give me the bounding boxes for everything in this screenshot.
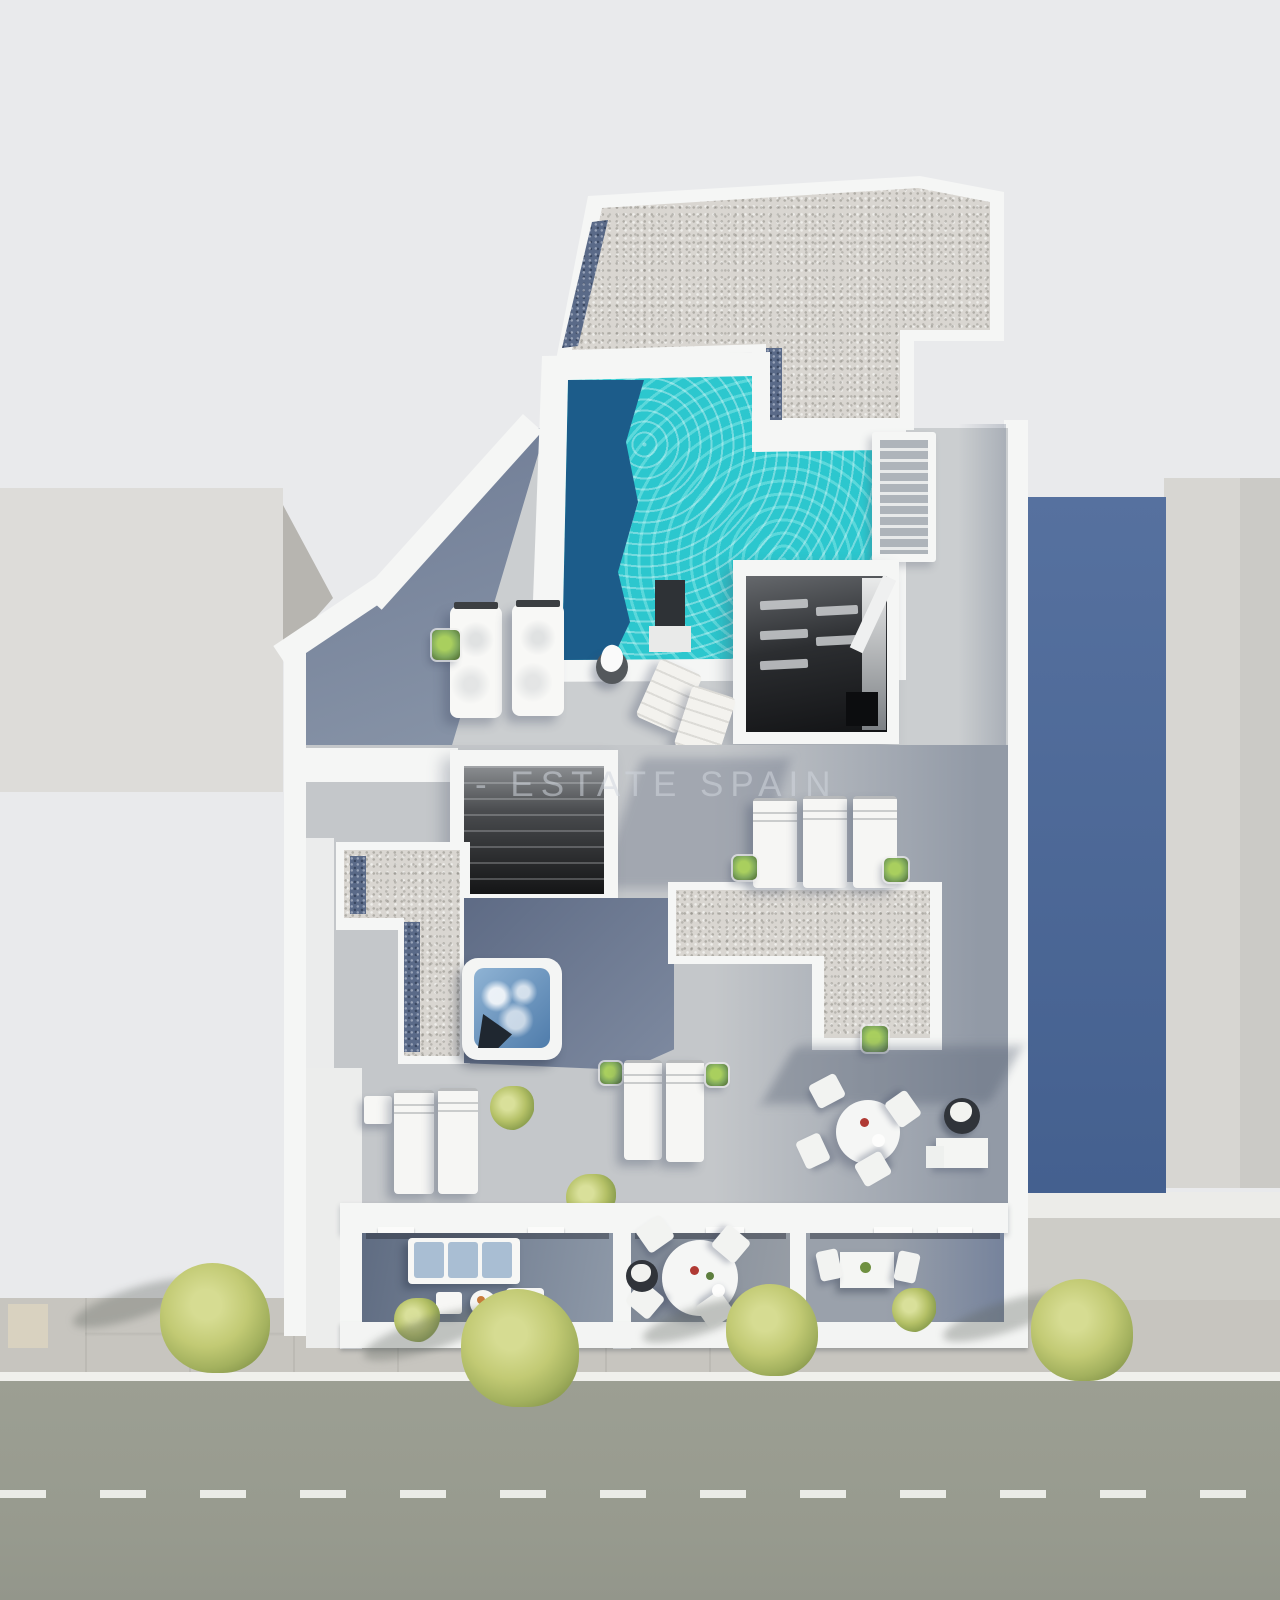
sofa-cushion [448, 1242, 478, 1278]
street-center-dashed-line [0, 1490, 1280, 1498]
plant-box [884, 858, 908, 882]
plant-box [706, 1064, 728, 1086]
sun-lounger [753, 798, 797, 888]
outdoor-shower-base [649, 626, 691, 652]
plate-red [690, 1266, 699, 1275]
right-deck-shadow [958, 424, 1006, 754]
stairs-steps [880, 440, 928, 554]
building-side-shadow-wall [1026, 497, 1166, 1193]
tactile-paving [8, 1304, 48, 1348]
gravel-border-strip [404, 922, 420, 1052]
sofa [408, 1238, 520, 1284]
street-tree [1031, 1279, 1133, 1381]
sofa-cushion [482, 1242, 512, 1278]
plate-red [860, 1118, 869, 1127]
aerial-render-scene: - ESTATE SPAIN [0, 0, 1280, 1600]
left-wall-pad [306, 838, 334, 1068]
plant-box [600, 1062, 622, 1084]
louver-dark-cube [846, 692, 878, 726]
street-tree [461, 1289, 579, 1407]
sun-lounger [666, 1060, 704, 1162]
plant-box [733, 856, 757, 880]
sun-lounger [803, 796, 847, 888]
cast-shadow [761, 1046, 1022, 1104]
daybed [512, 604, 564, 716]
plant-box [432, 630, 460, 660]
plate-white [872, 1134, 885, 1147]
daybed-headboard [454, 602, 498, 609]
neighbor-building-left [0, 488, 283, 792]
outdoor-shower-panel [655, 580, 685, 628]
daybed [450, 606, 502, 718]
sun-lounger [394, 1090, 434, 1194]
gravel-border-strip [350, 856, 366, 914]
street-tree [726, 1284, 818, 1376]
mid-wall [288, 748, 458, 782]
watermark-text: - ESTATE SPAIN [475, 765, 935, 805]
sofa-cushion [414, 1242, 444, 1278]
plate-white [712, 1284, 725, 1297]
table-plant [860, 1262, 871, 1273]
desk-chair [926, 1146, 944, 1168]
sun-lounger [438, 1088, 478, 1194]
right-ground-white-band [1028, 1192, 1280, 1218]
street-tree [160, 1263, 270, 1373]
potted-plant [490, 1086, 534, 1130]
daybed-headboard [516, 600, 560, 607]
sliding-door-track [810, 1233, 1000, 1239]
plate-green [706, 1272, 714, 1280]
sun-lounger [624, 1060, 662, 1160]
potted-plant [892, 1288, 936, 1332]
side-table [364, 1096, 392, 1124]
neighbor-building-right-edge [1240, 478, 1280, 1188]
